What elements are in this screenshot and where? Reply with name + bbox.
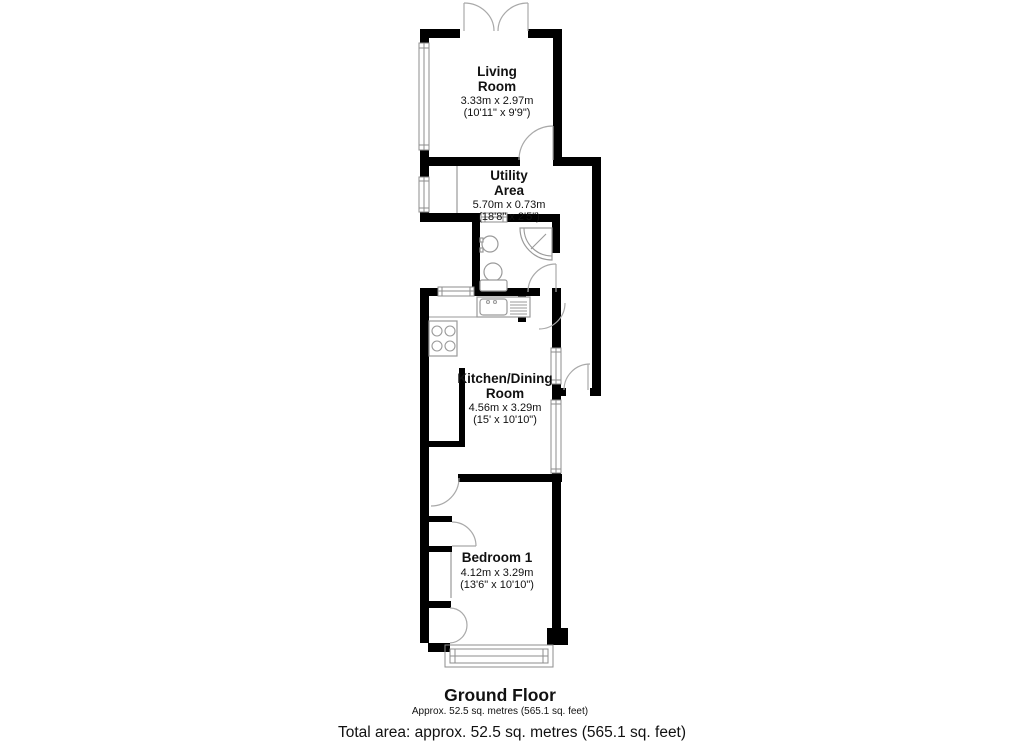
living-room-label: Living Room 3.33m x 2.97m (10'11" x 9'9"…	[461, 64, 534, 119]
kitchen-sink-icon	[477, 297, 530, 317]
bathroom-door	[528, 264, 556, 292]
thin-partitions	[451, 166, 457, 598]
hallway-door	[431, 478, 459, 506]
kitchen-fixtures	[429, 297, 530, 356]
floorplan-page: Living Room 3.33m x 2.97m (10'11" x 9'9"…	[0, 0, 1024, 744]
kitchen-dining-label: Kitchen/Dining Room 4.56m x 3.29m (15' x…	[457, 371, 552, 426]
toilet-icon	[480, 263, 507, 291]
living-room-name-1: Living	[477, 64, 517, 79]
living-room-name-2: Room	[478, 79, 516, 94]
basin-icon	[480, 236, 498, 252]
room-labels: Living Room 3.33m x 2.97m (10'11" x 9'9"…	[457, 64, 552, 591]
back-door	[564, 364, 590, 390]
dining-side-window	[551, 400, 561, 473]
bedroom-1-name: Bedroom 1	[462, 550, 533, 565]
kitchen-dining-dims-imperial: (15' x 10'10")	[473, 414, 537, 426]
shower-icon	[520, 228, 552, 260]
living-room-window	[419, 43, 429, 150]
bedroom-1-dims-imperial: (13'6" x 10'10")	[460, 579, 534, 591]
utility-window	[419, 177, 429, 212]
utility-area-dims-metric: 5.70m x 0.73m	[473, 199, 546, 211]
bathroom-fixtures	[480, 228, 552, 291]
ground-floor-plan: Living Room 3.33m x 2.97m (10'11" x 9'9"…	[0, 0, 1024, 744]
bay-window	[445, 645, 553, 667]
wardrobe-doors	[450, 608, 467, 643]
footer: Ground Floor Approx. 52.5 sq. metres (56…	[338, 685, 686, 741]
floor-subtitle: Approx. 52.5 sq. metres (565.1 sq. feet)	[412, 706, 588, 717]
kitchen-dining-name-2: Room	[486, 386, 524, 401]
bedroom-1-dims-metric: 4.12m x 3.29m	[461, 567, 534, 579]
living-room-dims-imperial: (10'11" x 9'9")	[464, 107, 531, 119]
total-area-text: Total area: approx. 52.5 sq. metres (565…	[338, 724, 686, 741]
floor-title: Ground Floor	[444, 685, 556, 705]
hob-icon	[429, 321, 457, 356]
living-room-dims-metric: 3.33m x 2.97m	[461, 95, 534, 107]
utility-area-dims-imperial: (18'8" x 2'5")	[478, 211, 540, 223]
utility-area-name-1: Utility	[490, 168, 528, 183]
utility-area-name-2: Area	[494, 183, 525, 198]
kitchen-window	[438, 287, 474, 296]
living-room-door	[519, 126, 553, 160]
bedroom-1-label: Bedroom 1 4.12m x 3.29m (13'6" x 10'10")	[460, 550, 534, 591]
french-doors	[464, 3, 528, 31]
kitchen-dining-name-1: Kitchen/Dining	[457, 371, 552, 386]
kitchen-dining-dims-metric: 4.56m x 3.29m	[469, 402, 542, 414]
bedroom-door	[452, 522, 476, 546]
utility-area-label: Utility Area 5.70m x 0.73m (18'8" x 2'5"…	[473, 168, 546, 223]
